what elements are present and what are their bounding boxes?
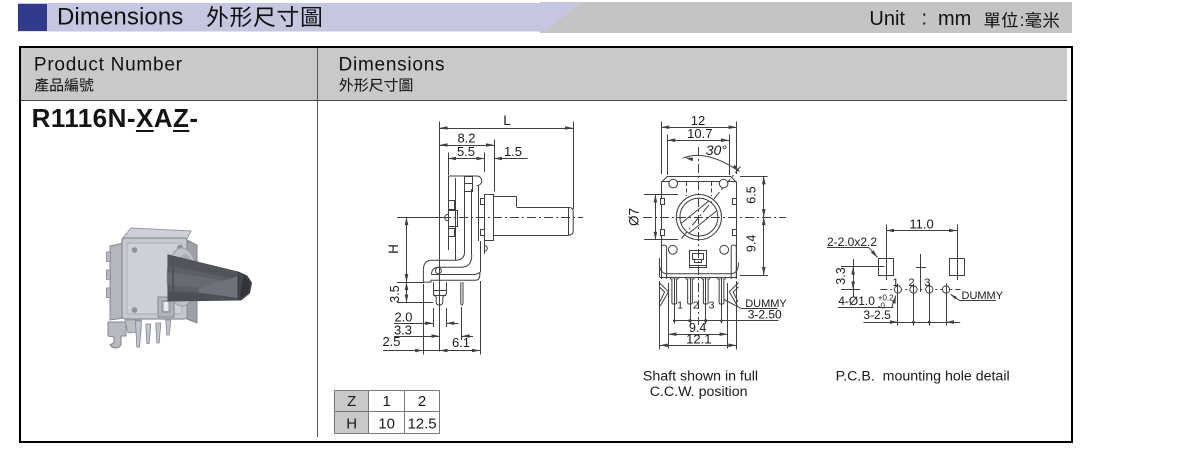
svg-text:2.5: 2.5 [382,334,400,349]
svg-text:2: 2 [418,393,426,410]
svg-text:1: 1 [893,277,899,289]
svg-text:3.3: 3.3 [834,267,848,284]
svg-text::: : [922,7,928,29]
svg-text:mm: mm [938,8,971,30]
svg-text:Dimensions: Dimensions [339,54,446,75]
svg-text:12.1: 12.1 [686,332,711,347]
svg-text:Dimensions: Dimensions [57,3,183,30]
svg-text:3: 3 [924,277,930,289]
svg-text:L: L [503,113,511,128]
svg-text:Product Number: Product Number [34,54,183,75]
svg-text:10.7: 10.7 [687,126,712,141]
svg-text::: : [1020,10,1025,30]
svg-text:10: 10 [378,415,395,432]
svg-text:6.5: 6.5 [744,186,758,203]
svg-text:5.5: 5.5 [457,144,475,159]
svg-text:2: 2 [693,300,699,312]
svg-text:1: 1 [382,393,390,410]
svg-text:2-2.0x2.2: 2-2.0x2.2 [827,235,877,249]
svg-text:1: 1 [677,300,683,312]
svg-text:9.4: 9.4 [744,235,758,252]
svg-text:30°: 30° [706,142,728,158]
svg-text:4-Ø1.0: 4-Ø1.0 [838,294,875,308]
svg-text:H: H [386,244,401,254]
svg-text:3-2.5: 3-2.5 [863,308,891,322]
svg-text:H: H [346,415,357,432]
svg-text:Unit: Unit [869,8,905,30]
svg-text:12.5: 12.5 [407,415,436,432]
svg-text:6.1: 6.1 [452,335,470,350]
svg-text:Ø7: Ø7 [627,208,642,226]
svg-text:3-2.50: 3-2.50 [748,307,782,321]
svg-text:2: 2 [908,277,914,289]
svg-text:C.C.W. position: C.C.W. position [650,384,748,400]
svg-text:3: 3 [709,300,715,312]
svg-text:Shaft shown in full: Shaft shown in full [643,368,758,384]
svg-text:3.5: 3.5 [388,285,402,302]
svg-text:11.0: 11.0 [909,216,933,231]
svg-text:Z: Z [347,393,356,410]
svg-text:1.5: 1.5 [504,144,522,159]
svg-text:P.C.B. mounting hole detail: P.C.B. mounting hole detail [836,368,1010,384]
